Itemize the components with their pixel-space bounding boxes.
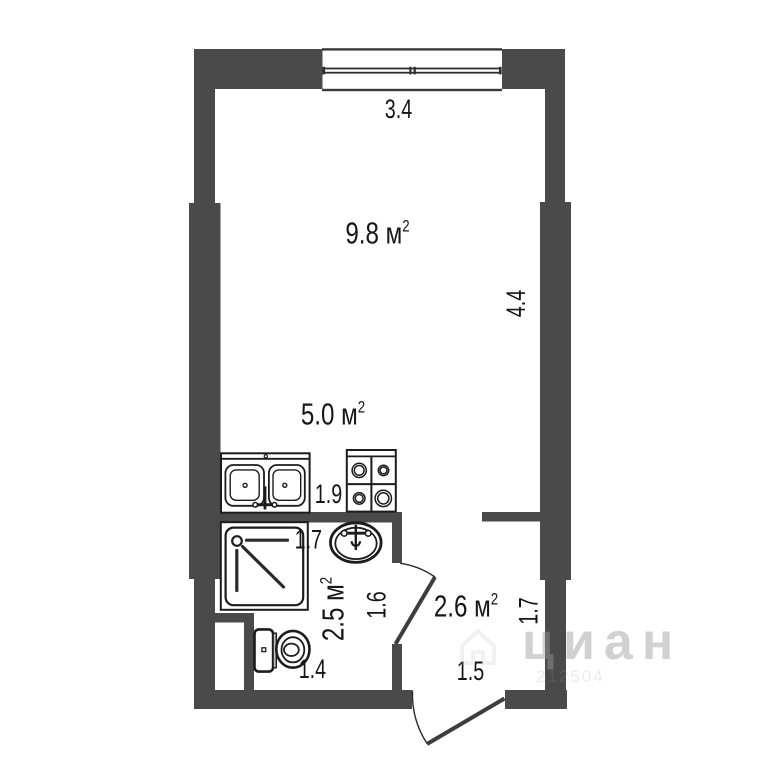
svg-text:1.4: 1.4	[299, 655, 326, 685]
svg-text:1.6: 1.6	[363, 591, 393, 618]
svg-text:4.4: 4.4	[502, 290, 532, 317]
svg-text:1.9: 1.9	[315, 480, 342, 510]
svg-text:2.6 м2: 2.6 м2	[434, 589, 498, 624]
svg-text:9.8 м2: 9.8 м2	[345, 216, 409, 251]
svg-text:циан: циан	[522, 613, 682, 671]
svg-text:2.5 м2: 2.5 м2	[316, 577, 351, 641]
svg-text:1.7: 1.7	[295, 525, 322, 555]
svg-text:212504: 212504	[536, 667, 605, 686]
svg-text:3.4: 3.4	[385, 95, 412, 125]
svg-text:5.0 м2: 5.0 м2	[301, 397, 365, 432]
